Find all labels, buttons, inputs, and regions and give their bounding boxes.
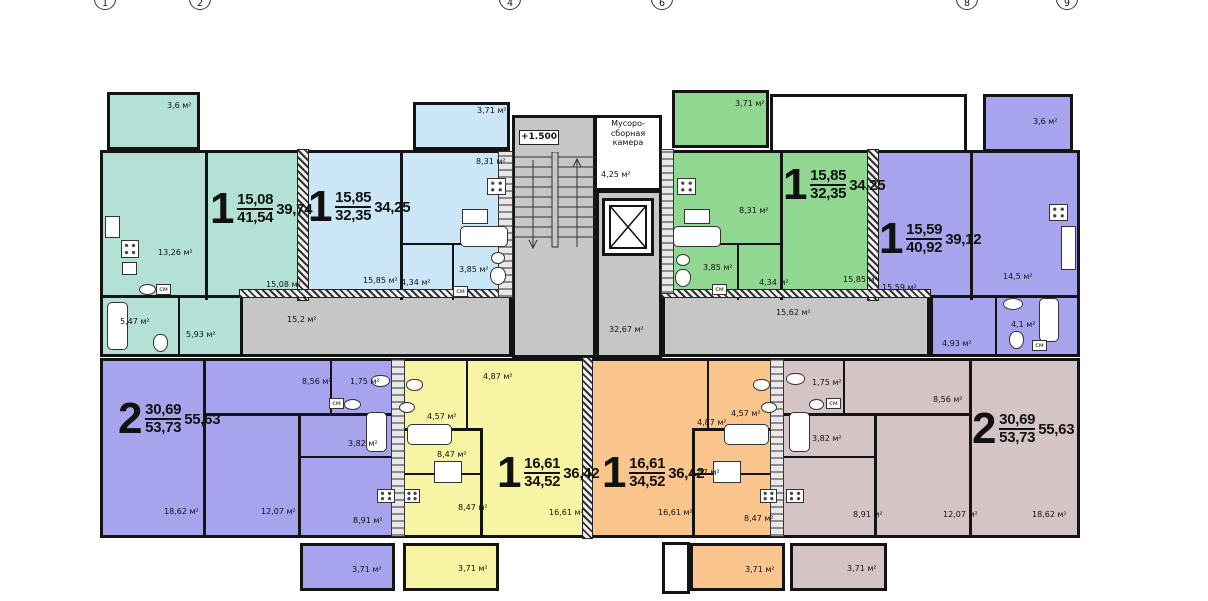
toilet-icon [1009, 331, 1024, 349]
room-area-a4-hall: 4,93 м² [942, 339, 972, 348]
apartment-a1-summary: 1 15,08 41,54 39,74 [210, 192, 312, 226]
apartment-type: 1 [783, 168, 807, 202]
stove-icon [786, 489, 804, 503]
corridor-left-block [240, 295, 512, 357]
apartment-a4-summary: 1 15,59 40,92 39,12 [879, 222, 981, 256]
axis-label: 2 [197, 0, 203, 9]
sink-icon [399, 402, 415, 413]
stove-icon [404, 489, 420, 503]
room-area-a4-bath: 4,1 м² [1011, 320, 1036, 329]
bathtub-icon [724, 424, 769, 445]
bathtub-icon [789, 412, 810, 452]
washer-label: см [1032, 340, 1047, 351]
sink-icon [344, 399, 361, 410]
bathtub-icon [460, 226, 508, 247]
apartment-type: 2 [118, 402, 142, 436]
area-fraction: 15,85 32,35 [335, 190, 371, 224]
room-area-a2-hall: 4,34 м² [401, 278, 431, 287]
apartment-type: 1 [602, 456, 626, 490]
apartment-a3-summary: 1 15,85 32,35 34,25 [783, 168, 885, 202]
room-area-a3-balcony: 3,71 м² [735, 99, 765, 108]
washer-label: см [712, 284, 727, 295]
axis-marker-2: 2 [189, 0, 211, 10]
axis-marker-9: 9 [1056, 0, 1078, 10]
room-area-b3-hall: 4,87 м² [697, 418, 727, 427]
axis-marker-6: 6 [651, 0, 673, 10]
interior-wall [178, 295, 180, 357]
room-area-a2-bath: 3,85 м² [459, 265, 489, 274]
apartment-b4-summary: 2 30,69 53,73 55,63 [972, 412, 1074, 446]
stairs-icon [514, 152, 596, 257]
interior-wall [466, 358, 468, 430]
sink-icon [139, 284, 156, 295]
room-area-a1-kitchen: 13,26 м² [158, 248, 193, 257]
toilet-icon [490, 267, 506, 285]
room-area-b2-hall: 4,87 м² [483, 372, 513, 381]
stove-icon [677, 178, 696, 195]
apartment-b3-summary: 1 16,61 34,52 36,42 [602, 456, 704, 490]
apartment-type: 1 [497, 456, 521, 490]
toilet-icon [153, 334, 168, 352]
room-area-b2-corridor: 8,47 м² [437, 450, 467, 459]
service-shaft [392, 360, 404, 536]
washer-label: см [329, 398, 344, 409]
room-area-a4-kitchen: 14,5 м² [1003, 272, 1033, 281]
interior-wall [298, 415, 301, 538]
room-area-a4-balcony: 3,6 м² [1033, 117, 1058, 126]
sink-icon [809, 399, 824, 410]
entrance-steps [662, 542, 690, 594]
axis-label: 1 [102, 0, 108, 9]
room-area-a3-kitchen: 8,31 м² [739, 206, 769, 215]
washer-label: см [826, 398, 841, 409]
washer-label: см [453, 286, 468, 297]
room-area-a2-living: 15,85 м² [363, 276, 398, 285]
apartment-type: 1 [879, 222, 903, 256]
bathtub-icon [1039, 298, 1059, 342]
room-area-b3-balcony: 3,71 м² [745, 565, 775, 574]
room-area-b4-wc: 1,75 м² [812, 378, 842, 387]
apartment-b1-summary: 2 30,69 53,73 55,63 [118, 402, 220, 436]
stove-icon [487, 178, 506, 195]
interior-wall [480, 428, 483, 538]
elevator-x-icon [605, 201, 651, 253]
apartment-a2-summary: 1 15,85 32,35 34,25 [308, 190, 410, 224]
floor-plan: 1 2 4 6 8 9 [0, 0, 1208, 601]
stove-icon [377, 489, 395, 503]
service-shaft [662, 150, 673, 293]
appliance-icon [684, 209, 710, 224]
room-area-b3-living: 16,61 м² [658, 508, 693, 517]
room-area-b4-balcony: 3,71 м² [847, 564, 877, 573]
stove-icon [121, 240, 139, 258]
corridor-right-area: 15,62 м² [776, 308, 811, 317]
interior-wall [775, 456, 875, 458]
room-area-b1-room1: 18,62 м² [164, 507, 199, 516]
room-area-a1-balcony: 3,6 м² [167, 101, 192, 110]
axis-label: 9 [1064, 0, 1070, 9]
sink-icon [491, 252, 505, 264]
room-area-a1-bath: 5,47 м² [120, 317, 150, 326]
interior-wall [203, 358, 206, 538]
interior-wall [874, 415, 877, 538]
bathtub-icon [673, 226, 721, 247]
room-area-a3-bath: 3,85 м² [703, 263, 733, 272]
room-area-a1-hall: 5,93 м² [186, 330, 216, 339]
room-area-a3-living: 15,85 м² [843, 275, 878, 284]
interior-wall [205, 150, 208, 300]
room-area-b2-balcony: 3,71 м² [458, 564, 488, 573]
room-area-b1-bath: 3,82 м² [348, 439, 378, 448]
garbage-room-label: Мусоро- сборная камера [594, 119, 662, 148]
bathtub-icon [107, 302, 128, 350]
axis-marker-8: 8 [956, 0, 978, 10]
room-area-b1-kitchen: 8,91 м² [353, 516, 383, 525]
corridor-left-area: 15,2 м² [287, 315, 317, 324]
fridge-icon [1061, 226, 1076, 270]
room-area-b4-hall: 8,56 м² [933, 395, 963, 404]
balcony-a4 [983, 94, 1073, 152]
area-fraction: 16,61 34,52 [629, 456, 665, 490]
stove-icon [1049, 204, 1068, 221]
area-fraction: 15,85 32,35 [810, 168, 846, 202]
appliance-icon [462, 209, 488, 224]
room-area-b4-kitchen: 8,91 м² [853, 510, 883, 519]
washer-label: см [156, 284, 171, 295]
room-area-a2-balcony: 3,71 м² [477, 106, 507, 115]
corridor-center-area: 32,67 м² [609, 325, 644, 334]
axis-label: 6 [659, 0, 665, 9]
corridor-wall [240, 290, 512, 297]
bathtub-icon [407, 424, 452, 445]
room-area-a2-kitchen: 8,31 м² [476, 157, 506, 166]
sink-icon [676, 254, 690, 266]
area-fraction: 15,59 40,92 [906, 222, 942, 256]
axis-marker-1: 1 [94, 0, 116, 10]
axis-label: 8 [964, 0, 970, 9]
elevator-shaft [602, 198, 654, 256]
room-area-a3-hall: 4,34 м² [759, 278, 789, 287]
axis-label: 4 [507, 0, 513, 9]
interior-wall [298, 456, 400, 458]
toilet-icon [406, 379, 423, 391]
toilet-icon [753, 379, 770, 391]
room-area-a4-living: 15,59 м² [882, 283, 917, 292]
room-area-a1-living: 15,08 м² [266, 280, 301, 289]
toilet-icon [675, 269, 691, 287]
room-area-b3-kitchen: 8,47 м² [744, 514, 774, 523]
area-fraction: 30,69 53,73 [145, 402, 181, 436]
room-area-b3-bath: 4,57 м² [731, 409, 761, 418]
room-area-b1-balcony: 3,71 м² [352, 565, 382, 574]
room-area-b4-room2: 12,07 м² [943, 510, 978, 519]
interior-wall [843, 358, 845, 415]
corridor-right-block [662, 295, 930, 357]
room-area-b1-hall: 8,56 м² [302, 377, 332, 386]
area-fraction: 16,61 34,52 [524, 456, 560, 490]
interior-wall [995, 295, 997, 357]
level-mark: +1.500 [519, 130, 559, 145]
terrace [770, 94, 967, 154]
kitchen-sink-icon [122, 262, 137, 275]
stove-icon [760, 489, 777, 503]
area-fraction: 30,69 53,73 [999, 412, 1035, 446]
party-wall [583, 358, 592, 538]
room-area-b2-bath: 4,57 м² [427, 412, 457, 421]
apartment-b2-summary: 1 16,61 34,52 36,42 [497, 456, 599, 490]
room-area-b2-living: 16,61 м² [549, 508, 584, 517]
axis-marker-4: 4 [499, 0, 521, 10]
apartment-type: 1 [308, 190, 332, 224]
toilet-icon [786, 373, 805, 385]
apartment-type: 1 [210, 192, 234, 226]
apartment-type: 2 [972, 412, 996, 446]
cupboard-icon [105, 216, 120, 238]
room-area-b2-kitchen: 8,47 м² [458, 503, 488, 512]
room-area-b1-room2: 12,07 м² [261, 507, 296, 516]
room-area-b4-bath: 3,82 м² [812, 434, 842, 443]
service-shaft [771, 360, 783, 536]
sink-icon [761, 402, 777, 413]
sink-icon [1003, 298, 1023, 310]
room-area-b1-wc: 1,75 м² [350, 377, 380, 386]
garbage-room-area: 4,25 м² [601, 170, 631, 179]
area-fraction: 15,08 41,54 [237, 192, 273, 226]
cupboard-icon [434, 461, 462, 483]
room-area-b4-room1: 18,62 м² [1032, 510, 1067, 519]
